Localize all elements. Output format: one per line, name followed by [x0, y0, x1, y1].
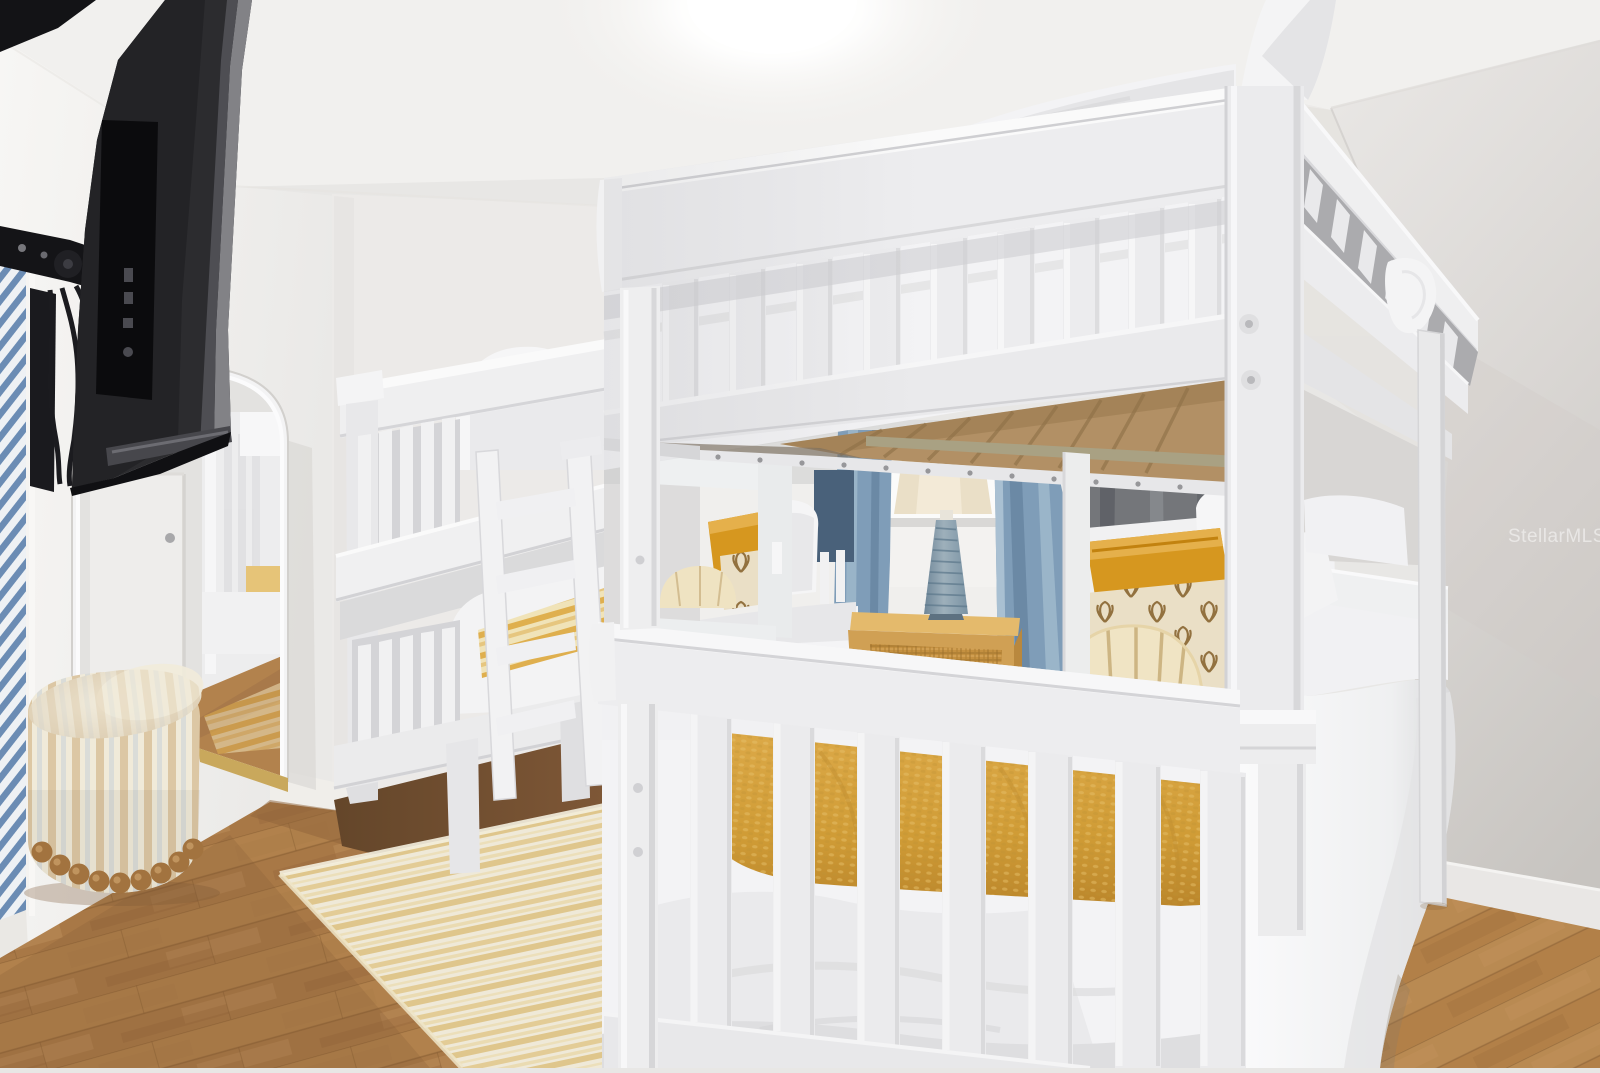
svg-text:StellarMLS: StellarMLS: [1508, 526, 1600, 547]
